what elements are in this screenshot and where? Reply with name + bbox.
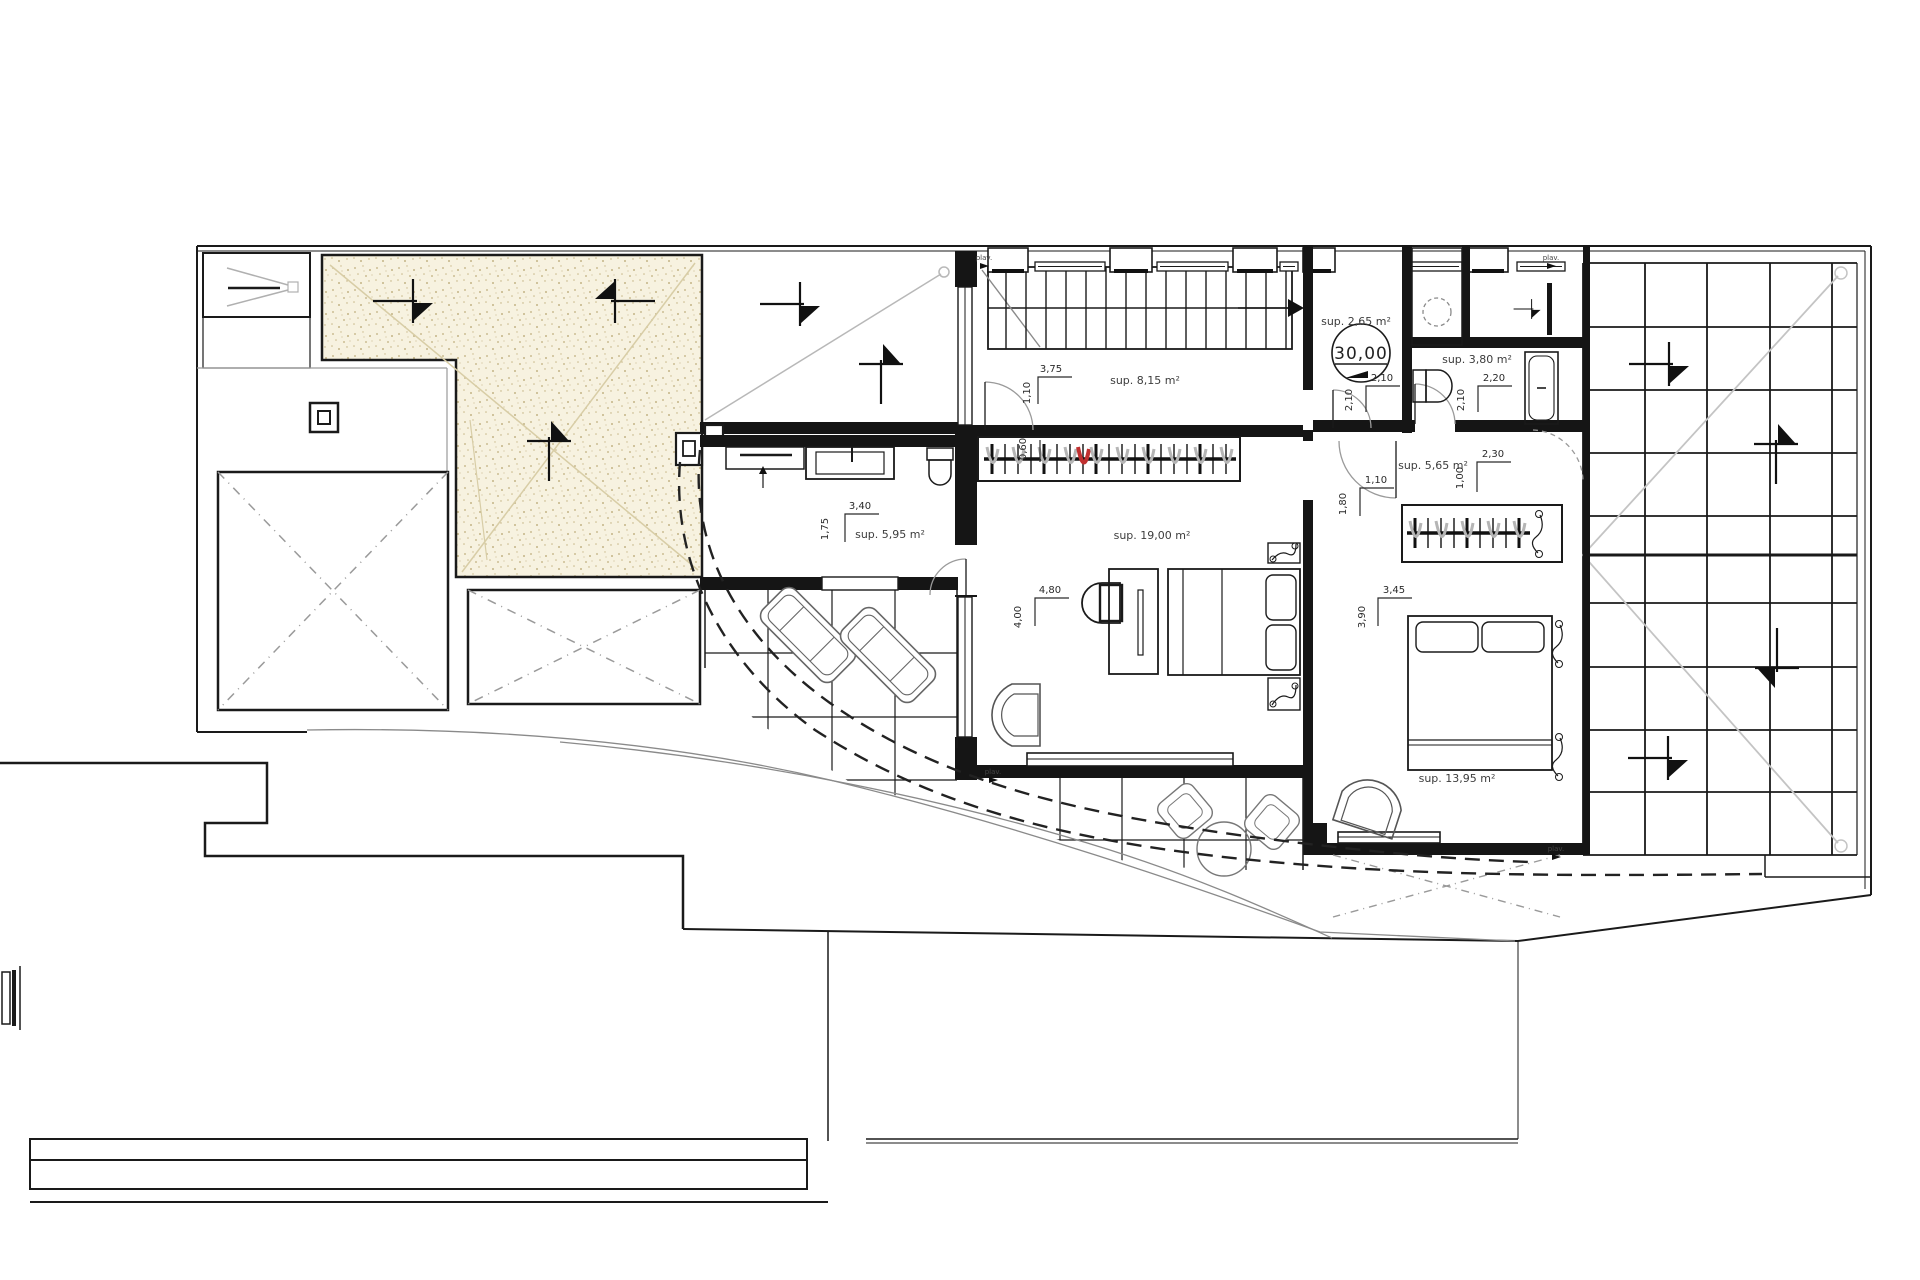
bathroom-fixtures — [726, 248, 1558, 488]
slope-arrow-icon — [760, 282, 820, 326]
dimension-label: 4,00 — [1013, 606, 1024, 628]
level-area-label: sup. 2,65 m² — [1321, 315, 1391, 328]
toilet-1 — [927, 448, 953, 485]
dimension-label: 4,80 — [1039, 585, 1061, 596]
nightstand-2 — [1268, 678, 1300, 710]
slope-arrow-icon — [1628, 736, 1688, 780]
dimension-label: 1,80 — [1338, 493, 1349, 515]
area-label-bathroom2-area: sup. 3,80 m² — [1442, 353, 1512, 366]
tiled-roof-diagonals — [1583, 267, 1847, 852]
dimension-label: 0,60 — [1018, 438, 1029, 460]
pergola-dashed — [1333, 855, 1560, 917]
section-mark — [2, 966, 20, 1030]
terrace-chair-1 — [1154, 780, 1216, 842]
level-marker: 30,00 sup. 2,65 m² — [1321, 315, 1391, 382]
slope-arrow-icon — [1755, 628, 1799, 688]
dimension-label: 1,75 — [820, 518, 831, 540]
plav-label: plav. — [976, 254, 993, 262]
floor-plan-sheet: 30,00 sup. 2,65 m² sup. 8,15 m²sup. 3,80… — [0, 0, 1920, 1280]
dimension-label: 1,00 — [1455, 467, 1466, 489]
site-outline — [0, 246, 1871, 941]
area-label-corridor-area: sup. 8,15 m² — [1110, 374, 1180, 387]
bathtub — [1525, 352, 1558, 424]
furniture — [992, 511, 1563, 839]
slope-arrow-icon — [1754, 424, 1798, 484]
armchair-1 — [992, 684, 1040, 746]
armchair-2 — [1333, 772, 1407, 839]
dimension-label: 3,45 — [1383, 585, 1405, 596]
nightstand-1 — [1268, 543, 1300, 563]
dimension-label: 2,20 — [1483, 373, 1505, 384]
wall-windows — [822, 287, 1440, 843]
staircase — [982, 267, 1304, 349]
lamp-symbol-2 — [1552, 621, 1562, 668]
lamp-symbol-1 — [1532, 511, 1542, 558]
plav-label: plav. — [985, 768, 1002, 776]
area-label-bedroom2-area: sup. 13,95 m² — [1419, 772, 1496, 785]
basin — [1423, 298, 1451, 326]
dimension-label: 1,10 — [1022, 382, 1033, 404]
slope-arrow-icon — [859, 344, 903, 404]
floor-plan-drawing: 30,00 sup. 2,65 m² sup. 8,15 m²sup. 3,80… — [0, 0, 1920, 1280]
sand-terrace — [322, 255, 702, 577]
plav-label: plav. — [1543, 254, 1560, 262]
plav-label: plav. — [1548, 845, 1565, 853]
bed-2 — [1408, 616, 1552, 770]
slope-arrow-icon — [1514, 299, 1541, 319]
slope-arrow-icon — [1629, 342, 1689, 386]
lower-terrace-steps — [30, 931, 1518, 1202]
dimension-label: 3,90 — [1357, 606, 1368, 628]
skylight-panel-2 — [468, 590, 700, 704]
bed-main — [1168, 569, 1300, 675]
toilet-2 — [1413, 370, 1452, 402]
closet — [726, 447, 804, 488]
roof-gutter-box — [203, 253, 310, 368]
dimension-label: 3,75 — [1040, 364, 1062, 375]
dimension-label: 3,40 — [849, 501, 871, 512]
desk — [1082, 569, 1158, 674]
level-value: 30,00 — [1334, 344, 1388, 364]
skylight-panel-1 — [218, 472, 448, 710]
doors — [930, 382, 1583, 595]
area-label-bedroom1-area: sup. 19,00 m² — [1114, 529, 1191, 542]
dimension-label: 2,10 — [1371, 373, 1393, 384]
lamp-symbol-3 — [1552, 734, 1562, 781]
tiled-roof-grid — [1583, 263, 1857, 855]
dimension-label: 2,10 — [1456, 389, 1467, 411]
wardrobe-dressing — [1402, 505, 1562, 562]
dimension-label: 2,30 — [1482, 449, 1504, 460]
dimension-label: 2,10 — [1344, 389, 1355, 411]
area-label-bathroom1-area: sup. 5,95 m² — [855, 528, 925, 541]
north-facade-windows — [988, 248, 1565, 273]
chimney — [310, 403, 338, 432]
dimension-label: 1,10 — [1365, 475, 1387, 486]
